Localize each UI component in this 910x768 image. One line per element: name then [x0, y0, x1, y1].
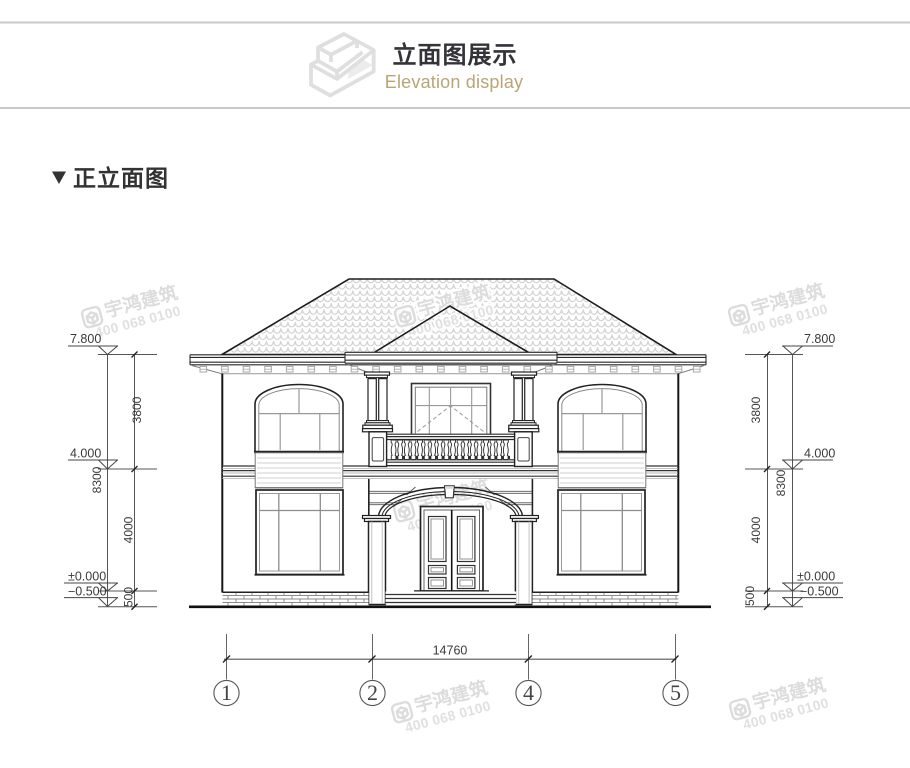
svg-text:5: 5: [670, 680, 681, 705]
svg-text:4000: 4000: [749, 516, 763, 543]
svg-text:8300: 8300: [774, 469, 788, 496]
svg-text:立面图展示: 立面图展示: [393, 41, 518, 69]
svg-text:500: 500: [122, 587, 136, 607]
svg-text:4.000: 4.000: [70, 447, 101, 461]
svg-text:8300: 8300: [90, 466, 104, 493]
svg-text:正立面图: 正立面图: [73, 165, 169, 191]
svg-text:±0.000: ±0.000: [68, 570, 106, 584]
svg-text:7.800: 7.800: [804, 332, 835, 346]
svg-text:14760: 14760: [433, 644, 468, 658]
svg-text:1: 1: [221, 680, 232, 705]
svg-text:±0.000: ±0.000: [797, 570, 835, 584]
svg-text:4.000: 4.000: [804, 447, 835, 461]
svg-text:500: 500: [743, 586, 757, 606]
svg-text:3800: 3800: [130, 396, 144, 423]
svg-text:4: 4: [523, 680, 534, 705]
svg-text:−0.500: −0.500: [800, 584, 839, 598]
svg-text:7.800: 7.800: [70, 332, 101, 346]
svg-text:−0.500: −0.500: [68, 584, 107, 598]
svg-text:4000: 4000: [122, 516, 136, 543]
svg-text:2: 2: [367, 680, 378, 705]
svg-text:3800: 3800: [749, 396, 763, 423]
svg-text:Elevation display: Elevation display: [385, 72, 523, 92]
